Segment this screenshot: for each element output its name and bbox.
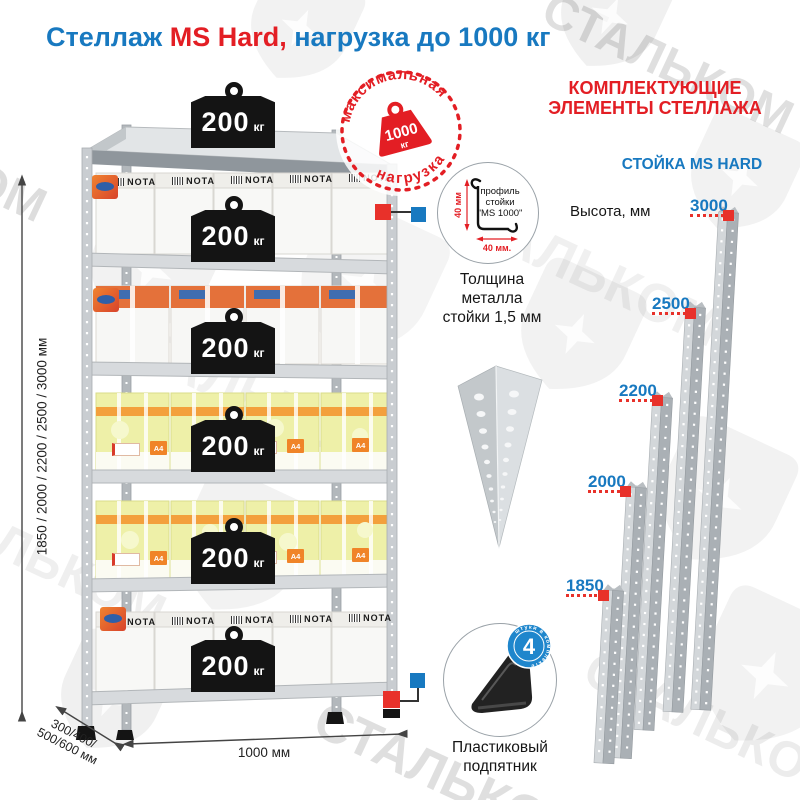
badge-number: 4 (523, 634, 536, 659)
height-dimension-line (12, 170, 36, 726)
box-brand-label: NOTA (222, 174, 274, 186)
svg-text:40 мм.: 40 мм. (483, 243, 511, 253)
post-3000 (691, 206, 739, 710)
brand-sticker (92, 175, 118, 199)
profile-marker-blue (411, 207, 426, 222)
a4-label: A4 (287, 439, 304, 453)
box-brand-label: NOTA (281, 613, 333, 625)
post-subheading: СТОЙКА MS HARD (612, 156, 772, 174)
box-brand-label: NOTA (281, 173, 333, 185)
box-brand-label: NOTA (163, 175, 215, 187)
box-mini-label (112, 553, 140, 566)
brand-sticker (100, 607, 126, 631)
shelf-load-weight: 200кг (191, 518, 275, 584)
shelf-load-weight: 200кг (191, 308, 275, 374)
a4-label: A4 (150, 441, 167, 455)
foot-caption: Пластиковый подпятник (438, 738, 562, 776)
foot-quantity-badge: 4 штуки в комплекте (505, 622, 553, 670)
a4-label: A4 (352, 438, 369, 452)
foot-marker-blue (410, 673, 425, 688)
shelf-load-weight: 200кг (191, 626, 275, 692)
a4-label: A4 (352, 548, 369, 562)
box-mini-label (112, 443, 140, 456)
dotted-leader (566, 594, 597, 597)
connector-line (417, 688, 419, 702)
connector-line (391, 211, 413, 213)
infographic-canvas: СТАЛЬКОМ СТАЛЬКОМ СТАЛЬКОМ СТАЛЬКОМ СТАЛ… (0, 0, 800, 800)
foot-marker-red (383, 691, 400, 708)
title-part-1: Стеллаж (46, 22, 170, 52)
profile-dim-horizontal: 40 мм. (476, 237, 518, 254)
box-brand-label: NOTA (222, 614, 274, 626)
post-marker (685, 308, 696, 319)
components-heading: КОМПЛЕКТУЮЩИЕ ЭЛЕМЕНТЫ СТЕЛЛАЖА (540, 78, 770, 118)
a4-label: A4 (287, 549, 304, 563)
post-marker (723, 210, 734, 221)
barcode-icon (231, 176, 242, 184)
post-marker (598, 590, 609, 601)
barcode-icon (290, 615, 301, 623)
a4-label: A4 (150, 551, 167, 565)
dotted-leader (652, 312, 686, 315)
svg-text:стойки: стойки (485, 197, 514, 208)
profile-label: профиль стойки "MS 1000" (478, 186, 523, 219)
svg-text:40 мм: 40 мм (453, 192, 463, 218)
barcode-icon (172, 177, 183, 185)
page-title: Стеллаж MS Hard, нагрузка до 1000 кг (46, 22, 551, 53)
width-dimension-text: 1000 мм (229, 745, 299, 760)
shelf-load-weight: 200кг (191, 196, 275, 262)
title-part-3: нагрузка до 1000 кг (287, 22, 551, 52)
svg-text:профиль: профиль (480, 186, 519, 197)
shelf-load-weight: 200кг (191, 406, 275, 472)
brand-sticker (93, 288, 119, 312)
post-marker (652, 395, 663, 406)
corner-post-perspective (448, 352, 552, 562)
dotted-leader (690, 214, 724, 217)
barcode-icon (231, 616, 242, 624)
profile-dim-vertical: 40 мм (453, 179, 470, 231)
title-part-2: MS Hard, (170, 22, 287, 52)
box-brand-label: NOTA (340, 612, 392, 624)
barcode-icon (290, 175, 301, 183)
dotted-leader (619, 399, 653, 402)
svg-text:"MS 1000": "MS 1000" (478, 208, 523, 219)
shelf-load-weight: 200кг (191, 82, 275, 148)
barcode-icon (349, 614, 360, 622)
post-marker (620, 486, 631, 497)
dotted-leader (588, 490, 620, 493)
barcode-icon (172, 617, 183, 625)
height-dimension-text: 1850 / 2000 / 2200 / 2500 / 3000 мм (35, 247, 50, 647)
profile-caption: Толщина металла стойки 1,5 мм (432, 270, 552, 327)
watermark-text: СТАЛЬКОМ (534, 0, 800, 146)
post-profile-detail: 40 мм 40 мм. профиль стойки "MS 1000" (437, 162, 539, 264)
shield-watermark-icon (540, 0, 679, 89)
